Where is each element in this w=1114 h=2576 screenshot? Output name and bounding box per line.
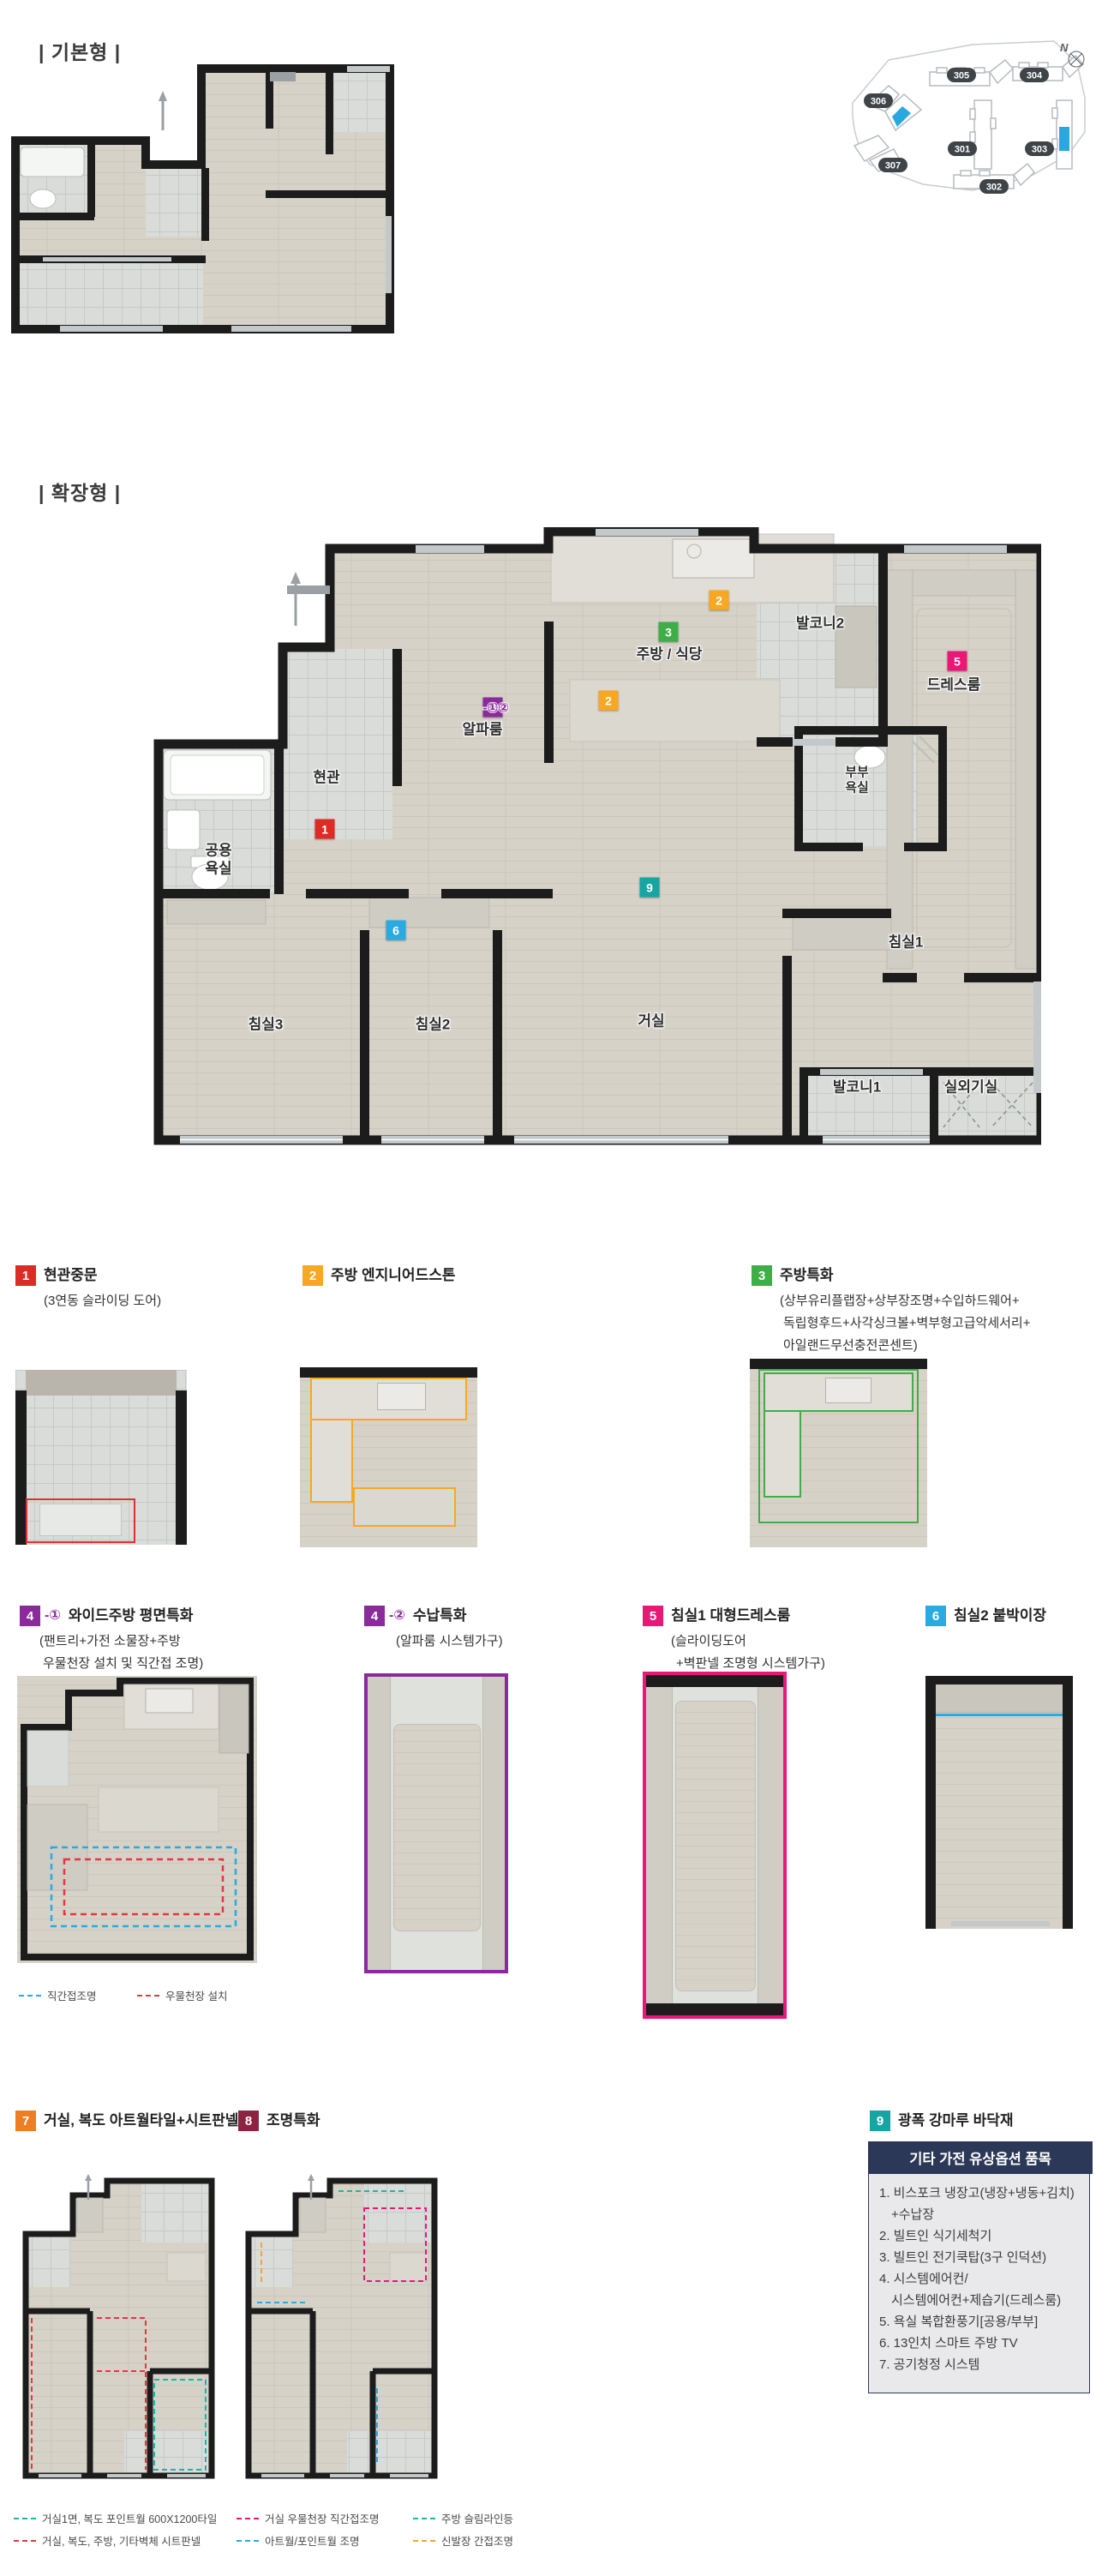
site-map: 306 305 304 307 301 303 302 N xyxy=(844,19,1093,203)
callout-6-badge: 6 xyxy=(925,1606,946,1626)
system-furniture-right xyxy=(482,1677,506,1970)
room-label-entrance: 현관 xyxy=(313,770,339,788)
callout-4b-header: 4 -② 수납특화 xyxy=(364,1606,466,1626)
wall xyxy=(750,1359,927,1369)
callout-9-header: 9 광폭 강마루 바닥재 xyxy=(870,2111,1014,2131)
sliding-door-panels xyxy=(39,1504,122,1536)
plan-badge-6: 6 xyxy=(386,921,406,940)
wall xyxy=(300,1367,477,1378)
wall xyxy=(1063,1676,1073,1929)
svg-text:301: 301 xyxy=(955,145,970,155)
detail-image-engineered-stone xyxy=(300,1367,477,1547)
room-label-outdoor: 실외기실 xyxy=(944,1079,998,1097)
option-item: 2. 빌트인 식기세척기 xyxy=(879,2225,1089,2247)
callout-3-badge: 3 xyxy=(752,1265,772,1286)
callout-9-badge: 9 xyxy=(870,2111,890,2131)
room-label-master-bath: 부부 욕실 xyxy=(845,766,869,797)
legend-shoe-cabinet-light: 신발장 간접조명 xyxy=(413,2532,513,2549)
site-map-drawing: 306 305 304 307 301 303 302 N xyxy=(844,19,1093,203)
sink xyxy=(377,1383,426,1410)
plan-badge-2a: 2 xyxy=(710,591,729,610)
room-label-dress: 드레스룸 xyxy=(927,677,981,695)
room-label-bed3: 침실3 xyxy=(249,1017,284,1035)
callout-4a-badge: 4 xyxy=(20,1606,40,1626)
legend-dash-blue xyxy=(19,1995,41,1997)
callout-7-badge: 7 xyxy=(15,2111,36,2131)
detail-image-dressroom xyxy=(643,1672,787,2019)
highlighted-unit-303 xyxy=(1059,127,1069,151)
option-item: 5. 욕실 복합환풍기[공용/부부] xyxy=(879,2311,1089,2333)
callout-4a-sub1: (팬트리+가전 소물장+주방 xyxy=(39,1631,181,1649)
legend-sheet-panel: 거실, 복도, 주방, 기타벽체 시트판넬 xyxy=(14,2532,201,2549)
entrance-top-cabinet xyxy=(26,1370,177,1396)
callout-3-title: 주방특화 xyxy=(780,1265,834,1286)
callout-2-badge: 2 xyxy=(302,1265,323,1286)
callout-3-sub3: 아일랜드무선충전콘센트) xyxy=(783,1336,918,1354)
callout-4b-sub1: (알파룸 시스템가구) xyxy=(396,1631,503,1649)
wall xyxy=(176,1390,187,1545)
window xyxy=(951,1921,1050,1926)
callout-8-badge: 8 xyxy=(238,2111,259,2131)
wall xyxy=(646,1675,783,1687)
basic-floor-plan-drawing xyxy=(9,62,394,338)
callout-7-title: 거실, 복도 아트월타일+시트판넬 xyxy=(44,2111,238,2131)
option-item: 1. 비스포크 냉장고(냉장+냉동+김치) +수납장 xyxy=(879,2183,1089,2225)
callout-4a-title: 와이드주방 평면특화 xyxy=(69,1606,193,1626)
plan-badge-3: 3 xyxy=(659,622,679,642)
callout-8-title: 조명특화 xyxy=(267,2111,320,2131)
plan-badge-9: 9 xyxy=(640,878,660,898)
counter-left-highlight xyxy=(310,1420,353,1503)
legend-indirect-light: 직간접조명 xyxy=(19,1987,97,2003)
callout-3-sub2: 독립형후드+사각싱크볼+벽부형고급악세서리+ xyxy=(783,1313,1030,1331)
room-label-bed1: 침실1 xyxy=(889,934,924,952)
callout-9-title: 광폭 강마루 바닥재 xyxy=(898,2111,1014,2131)
detail-image-wide-kitchen-plan xyxy=(17,1676,257,1963)
callout-4b-title: 수납특화 xyxy=(413,1606,467,1626)
closet-right xyxy=(758,1687,784,2003)
plan-badge-2b: 2 xyxy=(599,691,619,711)
callout-4a-badge-sub: -① xyxy=(45,1606,61,1626)
options-box-list: 1. 비스포크 냉장고(냉장+냉동+김치) +수납장 2. 빌트인 식기세척기 … xyxy=(868,2174,1090,2393)
callout-6-title: 침실2 붙박이장 xyxy=(954,1606,1046,1626)
legend-kitchen-slim-light: 주방 슬림라인등 xyxy=(413,2510,513,2526)
room-label-kitchen: 주방 / 식당 xyxy=(637,646,703,664)
detail-image-entrance-door xyxy=(15,1370,187,1545)
detail-image-artwall xyxy=(13,2173,223,2490)
sink xyxy=(825,1378,871,1403)
callout-1-title: 현관중문 xyxy=(44,1265,98,1286)
plan-badge-4: 4 -①② xyxy=(483,698,503,718)
built-in-closet xyxy=(936,1684,1063,1713)
callout-4b-badge-sub: -② xyxy=(389,1606,405,1626)
plan-badge-1: 1 xyxy=(315,820,335,839)
callout-5-sub1: (슬라이딩도어 xyxy=(671,1631,746,1649)
legend-coffered-ceiling: 우물천장 설치 xyxy=(137,1987,227,2003)
extended-type-label: | 확장형 | xyxy=(39,477,121,506)
detail-image-kitchen-special xyxy=(750,1359,927,1547)
callout-4b-badge: 4 xyxy=(364,1606,385,1626)
legend-dash-red xyxy=(137,1995,159,1997)
callout-5-badge: 5 xyxy=(643,1606,663,1626)
detail-image-lighting xyxy=(236,2173,446,2490)
svg-text:305: 305 xyxy=(954,71,969,81)
svg-text:N: N xyxy=(1060,41,1069,54)
wall xyxy=(646,2003,783,2015)
closet-left xyxy=(646,1687,673,2003)
room-label-common-bath: 공용 욕실 xyxy=(205,842,231,877)
options-box-title: 기타 가전 유상옵션 품목 xyxy=(868,2141,1093,2174)
room-label-balcony2: 발코니2 xyxy=(796,615,844,633)
callout-3-sub1: (상부유리플랩장+상부장조명+수입하드웨어+ xyxy=(780,1291,1020,1309)
dressroom-floor xyxy=(675,1701,756,1991)
wall xyxy=(925,1676,936,1929)
alpha-room-floor xyxy=(393,1724,481,1931)
room-label-alpha: 알파룸 xyxy=(463,722,503,740)
callout-6-header: 6 침실2 붙박이장 xyxy=(925,1606,1046,1626)
option-item: 7. 공기청정 시스템 xyxy=(879,2354,1089,2375)
island-highlight xyxy=(353,1487,456,1527)
plan-badge-5: 5 xyxy=(948,652,967,671)
callout-7-header: 7 거실, 복도 아트월타일+시트판넬 xyxy=(15,2111,238,2131)
option-item: 4. 시스템에어컨/ 시스템에어컨+제습기(드레스룸) xyxy=(879,2268,1089,2311)
brochure-page: | 기본형 | xyxy=(0,0,1114,2576)
callout-8-header: 8 조명특화 xyxy=(238,2111,320,2131)
legend-living-ceiling-light: 거실 우물천장 직간접조명 xyxy=(237,2510,379,2526)
svg-text:303: 303 xyxy=(1032,145,1047,155)
option-item: 6. 13인치 스마트 주방 TV xyxy=(879,2333,1089,2354)
side-counter-highlight xyxy=(764,1412,801,1498)
room-label-living: 거실 xyxy=(638,1013,664,1031)
extended-floor-plan: 현관 공용 욕실 알파룸 주방 / 식당 발코니2 드레스룸 부부 욕실 침실1… xyxy=(81,527,1041,1196)
callout-5-sub2: +벽판넬 조명형 시스템가구) xyxy=(676,1654,825,1672)
callout-5-title: 침실1 대형드레스룸 xyxy=(671,1606,790,1626)
detail-image-alpha-storage xyxy=(364,1673,508,1973)
wall xyxy=(936,1676,1063,1684)
basic-type-label: | 기본형 | xyxy=(39,36,121,65)
callout-4a-sub2: 우물천장 설치 및 직간접 조명) xyxy=(43,1654,203,1672)
room-label-bed2: 침실2 xyxy=(416,1017,451,1035)
north-icon: N xyxy=(1060,41,1084,67)
legend-artwall-tile: 거실1면, 복도 포인트월 600X1200타일 xyxy=(14,2510,217,2526)
svg-text:302: 302 xyxy=(986,183,1002,193)
callout-2-title: 주방 엔지니어드스톤 xyxy=(331,1265,455,1286)
svg-text:307: 307 xyxy=(885,161,901,171)
callout-1-badge: 1 xyxy=(15,1265,36,1286)
option-item: 3. 빌트인 전기쿡탑(3구 인덕션) xyxy=(879,2247,1089,2268)
callout-1-sub: (3연동 슬라이딩 도어) xyxy=(44,1291,161,1309)
basic-floor-plan xyxy=(9,62,394,338)
system-furniture-left xyxy=(368,1677,391,1970)
callout-1-header: 1 현관중문 xyxy=(15,1265,98,1286)
svg-text:306: 306 xyxy=(871,97,886,107)
callout-3-header: 3 주방특화 xyxy=(752,1265,834,1286)
callout-5-header: 5 침실1 대형드레스룸 xyxy=(643,1606,790,1626)
detail-image-bed2-closet xyxy=(925,1676,1073,1929)
legend-artwall-light: 아트월/포인트월 조명 xyxy=(237,2532,359,2549)
room-label-balcony1: 발코니1 xyxy=(833,1079,881,1097)
closet-highlight-line xyxy=(936,1714,1063,1716)
plan-badge-4-sub: -①② xyxy=(483,700,509,715)
callout-2-header: 2 주방 엔지니어드스톤 xyxy=(302,1265,455,1286)
svg-text:304: 304 xyxy=(1027,71,1043,81)
callout-4a-header: 4 -① 와이드주방 평면특화 xyxy=(20,1606,193,1626)
